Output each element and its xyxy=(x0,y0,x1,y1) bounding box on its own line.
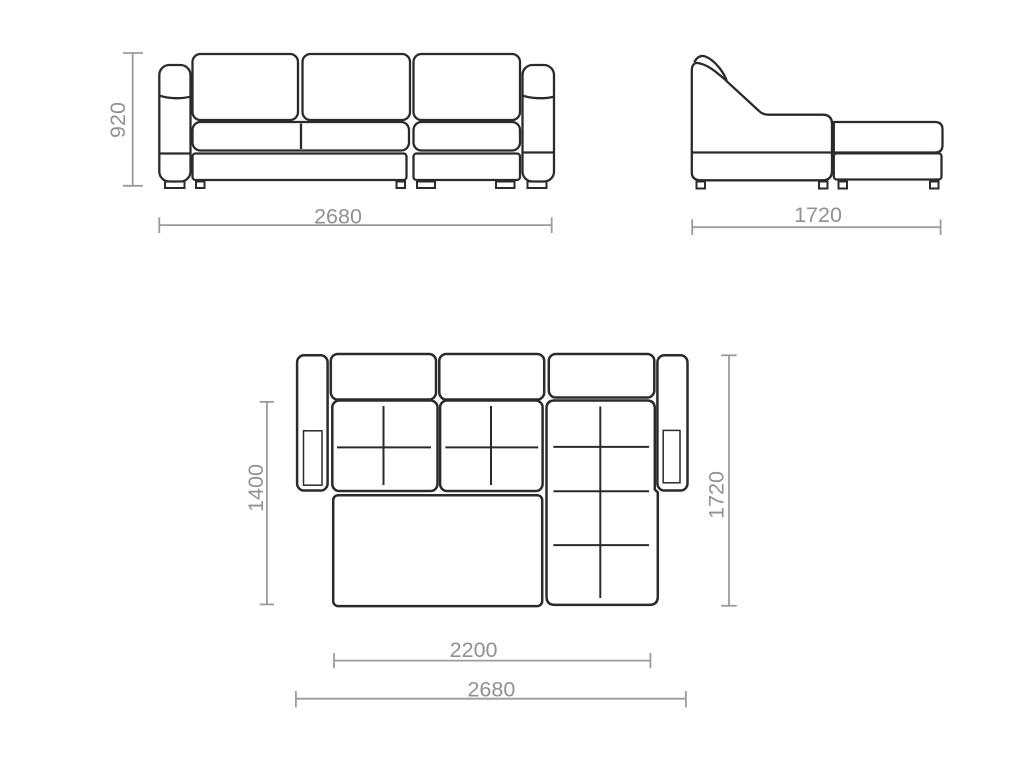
svg-text:920: 920 xyxy=(106,102,130,138)
svg-text:1720: 1720 xyxy=(794,203,842,227)
svg-text:2680: 2680 xyxy=(314,204,362,228)
svg-text:1720: 1720 xyxy=(704,471,728,519)
svg-text:2680: 2680 xyxy=(467,678,515,702)
svg-text:2200: 2200 xyxy=(450,638,498,662)
svg-text:1400: 1400 xyxy=(244,464,268,512)
